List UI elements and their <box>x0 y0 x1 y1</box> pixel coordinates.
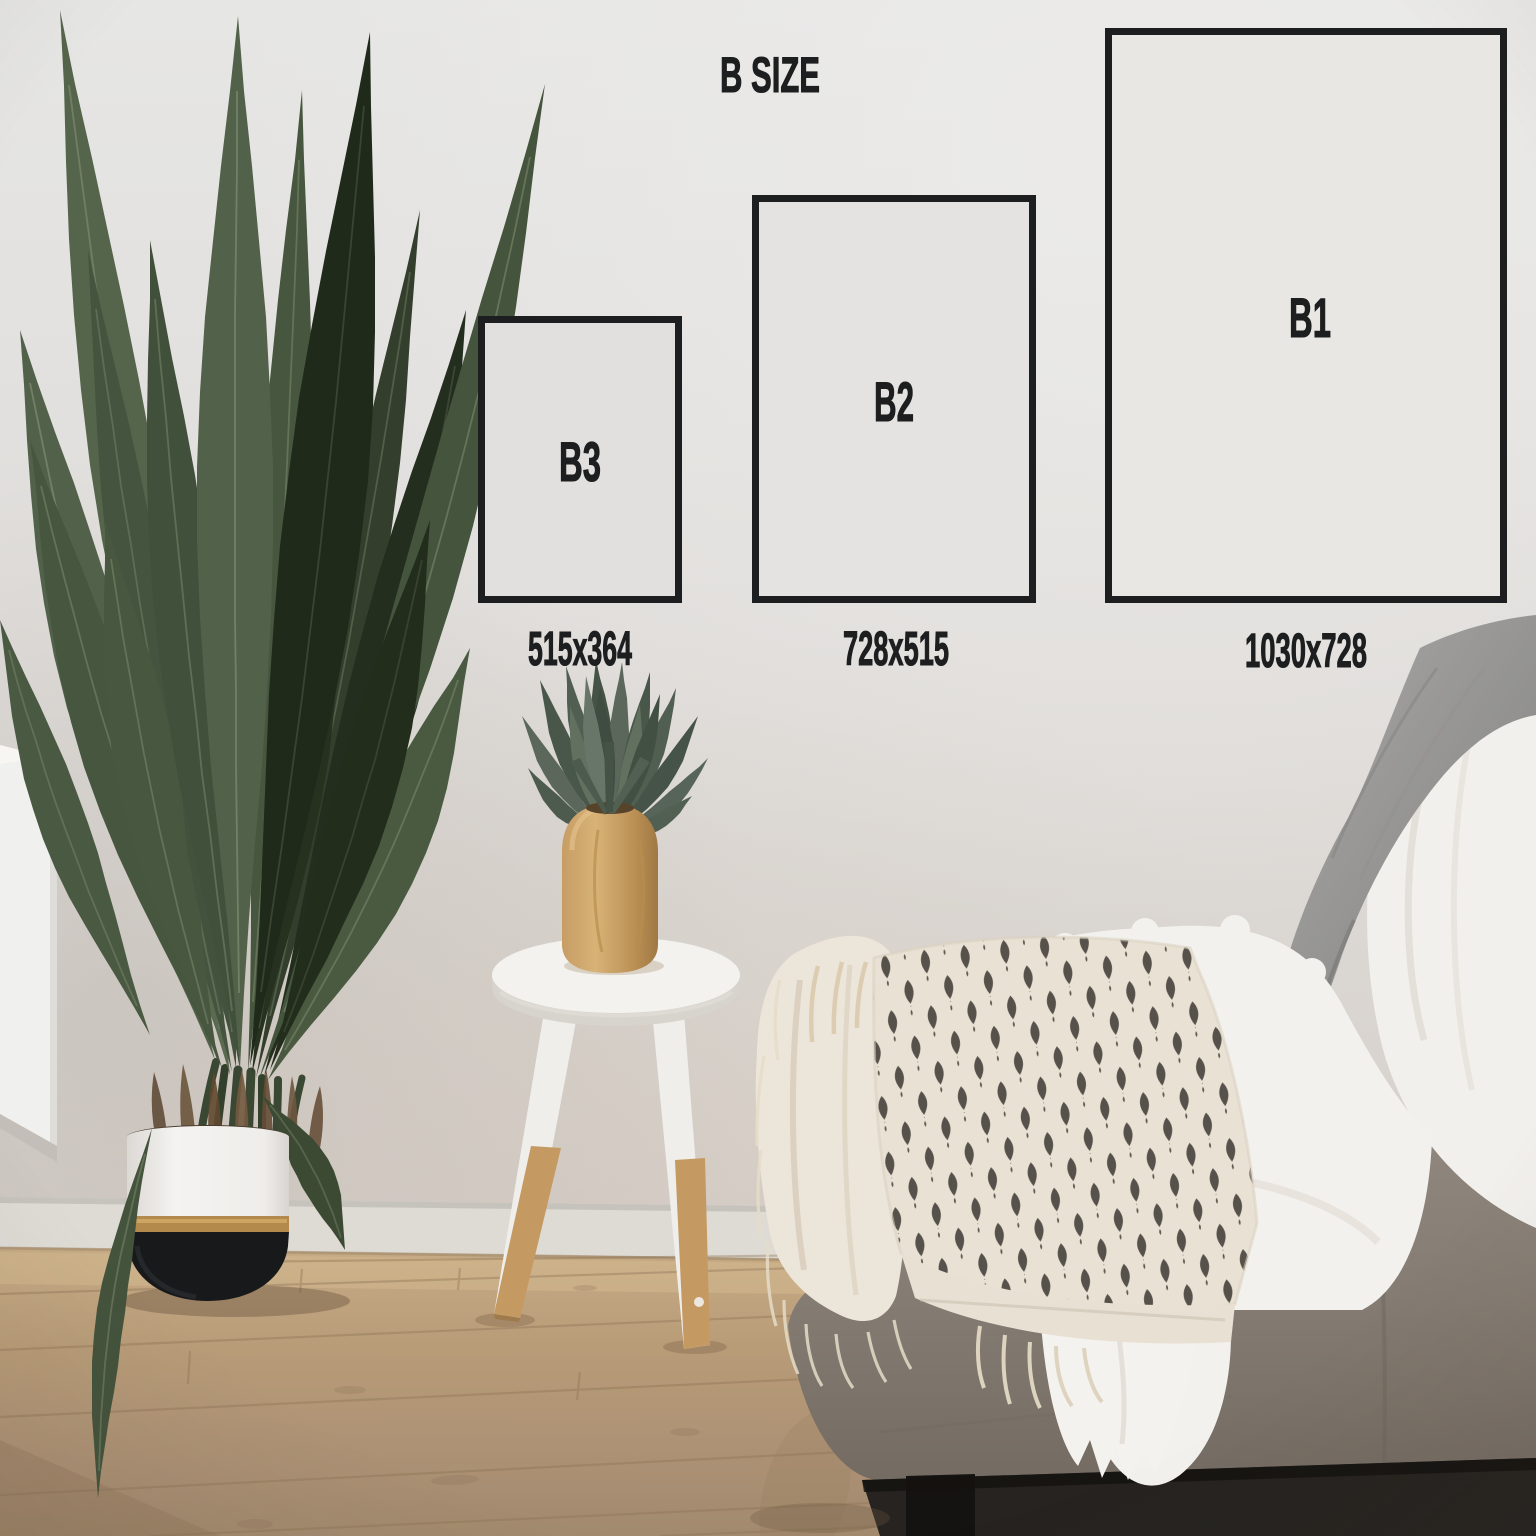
svg-text:B2: B2 <box>874 370 914 433</box>
svg-text:B1: B1 <box>1289 286 1331 349</box>
svg-text:B3: B3 <box>559 430 601 493</box>
svg-text:1030x728: 1030x728 <box>1245 625 1367 678</box>
svg-text:B SIZE: B SIZE <box>720 47 820 103</box>
svg-text:515x364: 515x364 <box>528 623 632 676</box>
svg-text:728x515: 728x515 <box>843 623 949 676</box>
